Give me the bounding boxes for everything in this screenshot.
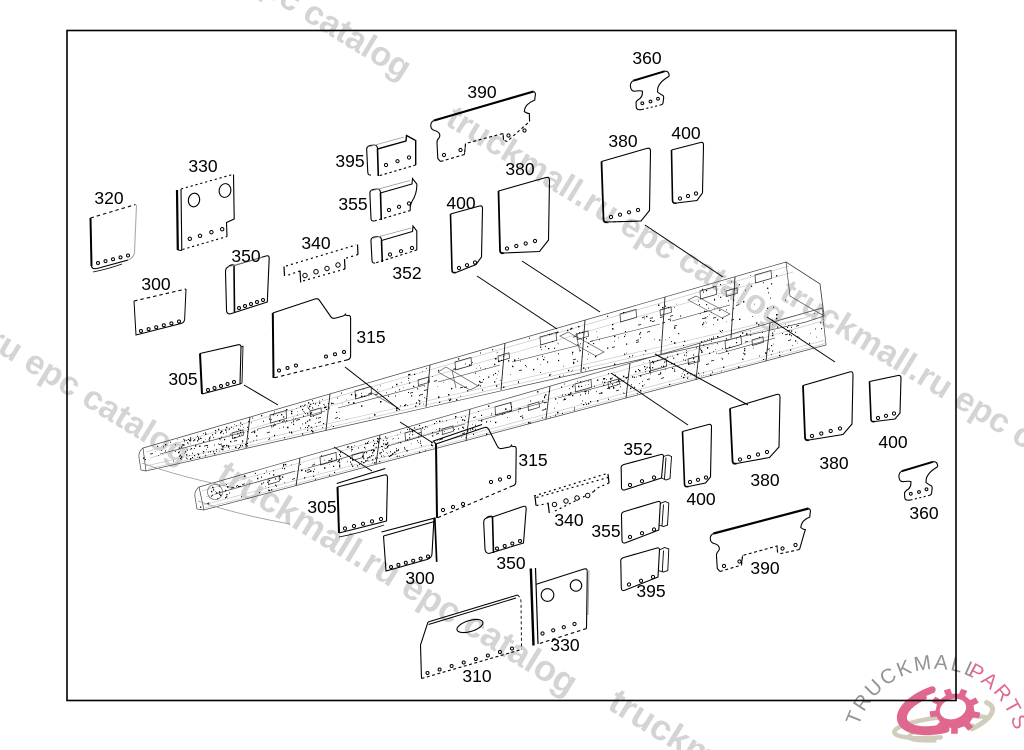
svg-text:400: 400 xyxy=(671,123,700,143)
svg-text:305: 305 xyxy=(307,497,336,517)
svg-text:340: 340 xyxy=(554,510,583,530)
svg-text:350: 350 xyxy=(496,553,525,573)
svg-text:352: 352 xyxy=(392,263,421,283)
svg-text:315: 315 xyxy=(518,450,547,470)
svg-text:310: 310 xyxy=(462,666,491,686)
svg-text:380: 380 xyxy=(750,470,779,490)
svg-text:340: 340 xyxy=(301,233,330,253)
svg-text:330: 330 xyxy=(188,156,217,176)
svg-text:315: 315 xyxy=(356,327,385,347)
svg-text:395: 395 xyxy=(636,581,665,601)
svg-text:330: 330 xyxy=(550,635,579,655)
svg-text:355: 355 xyxy=(591,521,620,541)
svg-text:380: 380 xyxy=(608,131,637,151)
svg-text:400: 400 xyxy=(446,193,475,213)
svg-text:400: 400 xyxy=(686,489,715,509)
svg-text:352: 352 xyxy=(623,439,652,459)
svg-text:truckmall.ru epc catalog: truckmall.ru epc catalog xyxy=(65,0,418,87)
svg-text:390: 390 xyxy=(750,558,779,578)
svg-text:PARTS: PARTS xyxy=(965,659,1024,734)
svg-text:355: 355 xyxy=(338,194,367,214)
svg-text:380: 380 xyxy=(819,453,848,473)
svg-text:400: 400 xyxy=(878,432,907,452)
svg-text:truckmall.ru epc catalog: truckmall.ru epc catalog xyxy=(211,452,586,703)
svg-text:360: 360 xyxy=(909,503,938,523)
svg-text:300: 300 xyxy=(141,274,170,294)
svg-text:305: 305 xyxy=(168,369,197,389)
svg-text:395: 395 xyxy=(335,151,364,171)
svg-text:390: 390 xyxy=(467,82,496,102)
svg-text:350: 350 xyxy=(231,246,260,266)
svg-text:320: 320 xyxy=(94,188,123,208)
svg-text:380: 380 xyxy=(505,159,534,179)
svg-text:300: 300 xyxy=(405,568,434,588)
svg-text:360: 360 xyxy=(632,48,661,68)
